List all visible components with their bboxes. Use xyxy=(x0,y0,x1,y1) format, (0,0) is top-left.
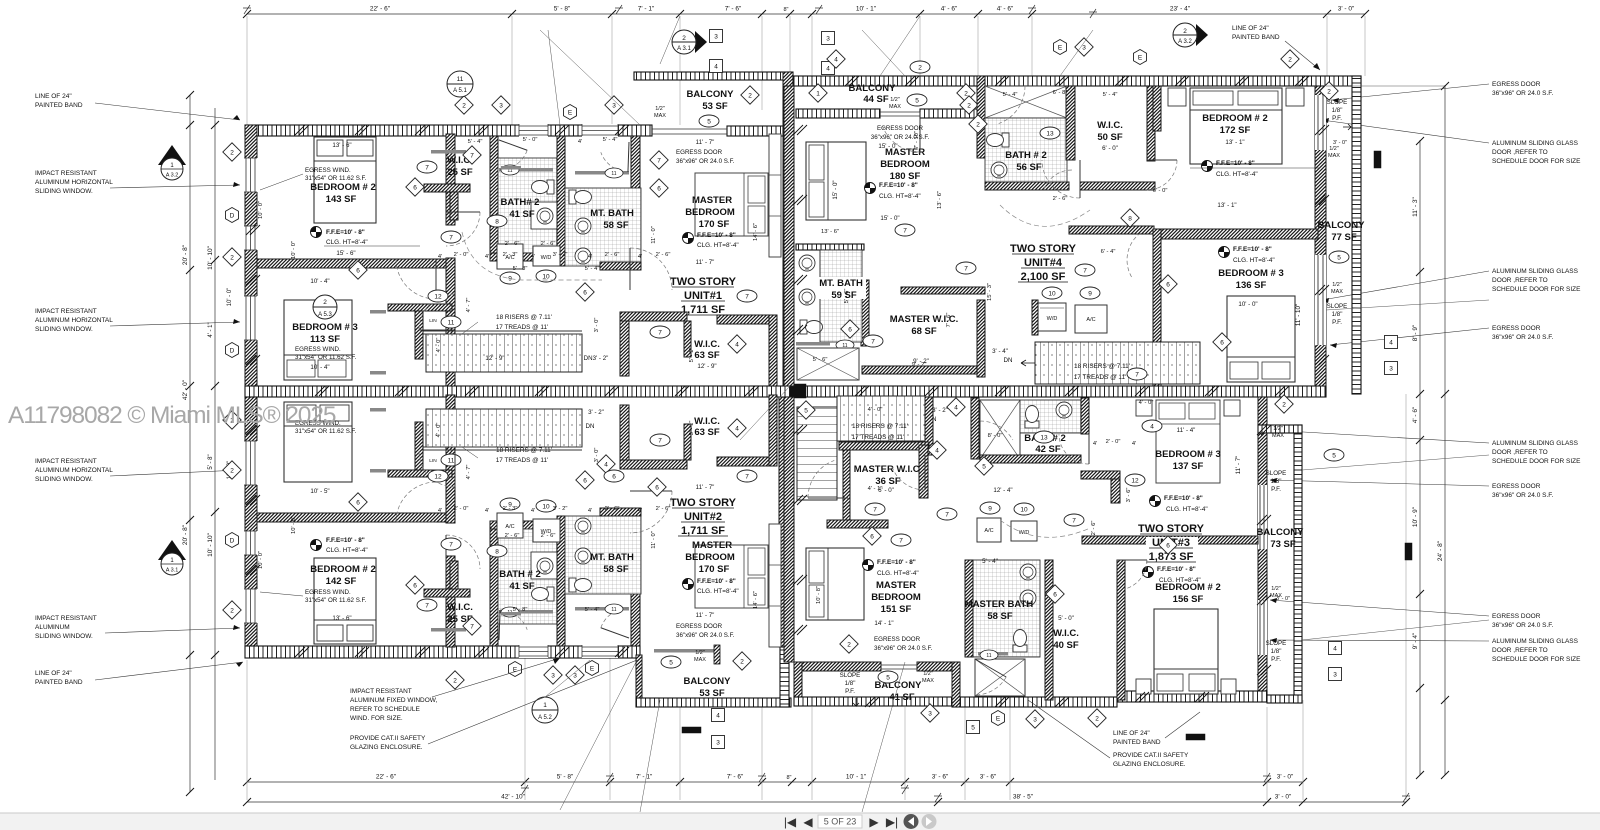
svg-text:23' - 4": 23' - 4" xyxy=(1170,6,1191,13)
svg-text:170 SF: 170 SF xyxy=(699,564,730,575)
svg-text:5: 5 xyxy=(971,724,975,731)
svg-text:5' - 8": 5' - 8" xyxy=(554,6,571,13)
svg-text:BALCONY: BALCONY xyxy=(1257,527,1305,538)
svg-text:2' - 6": 2' - 6" xyxy=(656,252,671,258)
svg-text:12' - 9": 12' - 9" xyxy=(697,363,716,370)
svg-text:MAX: MAX xyxy=(889,104,901,110)
svg-text:3: 3 xyxy=(716,739,720,746)
svg-text:4': 4' xyxy=(531,254,535,260)
svg-text:2' - 6": 2' - 6" xyxy=(605,506,620,512)
svg-text:4' - 0": 4' - 0" xyxy=(436,423,442,438)
svg-text:40 SF: 40 SF xyxy=(1053,640,1079,651)
svg-text:10' - 10": 10' - 10" xyxy=(207,532,214,556)
svg-text:MASTER: MASTER xyxy=(692,195,732,206)
svg-text:EGRESS DOOR: EGRESS DOOR xyxy=(877,125,924,132)
svg-text:6: 6 xyxy=(657,185,661,192)
svg-text:5: 5 xyxy=(982,463,986,470)
svg-text:2: 2 xyxy=(1095,715,1099,722)
svg-text:CLG. HT=8'-4": CLG. HT=8'-4" xyxy=(1166,506,1208,513)
svg-text:10' - 4": 10' - 4" xyxy=(310,278,329,285)
svg-text:4' - 6": 4' - 6" xyxy=(997,6,1014,13)
svg-text:4': 4' xyxy=(588,254,592,260)
svg-text:DOOR ,REFER TO: DOOR ,REFER TO xyxy=(1492,449,1548,456)
svg-text:42 SF: 42 SF xyxy=(1035,444,1061,455)
svg-text:12' - 4": 12' - 4" xyxy=(993,487,1012,494)
svg-text:LINE OF 24": LINE OF 24" xyxy=(35,93,72,100)
svg-text:6' - 0": 6' - 0" xyxy=(1102,145,1118,152)
svg-text:A/C: A/C xyxy=(984,528,993,534)
svg-text:31"x54" OR 11.62 S.F.: 31"x54" OR 11.62 S.F. xyxy=(305,175,367,182)
svg-text:SCHEDULE DOOR FOR SIZE: SCHEDULE DOOR FOR SIZE xyxy=(1492,458,1581,465)
svg-text:2' - 6": 2' - 6" xyxy=(1091,521,1097,536)
svg-text:5' - 4": 5' - 4" xyxy=(468,139,483,145)
svg-text:6: 6 xyxy=(356,267,360,274)
svg-text:22' - 6": 22' - 6" xyxy=(376,774,397,781)
svg-text:DOOR ,REFER TO: DOOR ,REFER TO xyxy=(1492,647,1548,654)
svg-text:10' - 0": 10' - 0" xyxy=(291,241,297,259)
svg-text:7' - 6": 7' - 6" xyxy=(946,313,952,328)
svg-text:F.F.E=10' - 8": F.F.E=10' - 8" xyxy=(326,537,365,544)
svg-text:6: 6 xyxy=(655,484,659,491)
svg-text:11: 11 xyxy=(448,319,455,326)
svg-text:4' - 7": 4' - 7" xyxy=(466,298,472,313)
svg-text:2: 2 xyxy=(918,64,922,71)
svg-text:7: 7 xyxy=(425,164,429,171)
svg-text:2: 2 xyxy=(230,149,234,156)
svg-text:8: 8 xyxy=(495,548,499,555)
svg-text:2: 2 xyxy=(323,299,327,306)
svg-text:1/2": 1/2" xyxy=(1332,282,1342,288)
svg-text:11' - 7": 11' - 7" xyxy=(1235,456,1242,475)
svg-text:1/2": 1/2" xyxy=(1329,146,1339,152)
svg-text:11' - 7": 11' - 7" xyxy=(696,139,715,146)
svg-text:36"x96" OR 24.0 S.F.: 36"x96" OR 24.0 S.F. xyxy=(676,158,735,165)
svg-text:TWO STORY: TWO STORY xyxy=(670,276,737,288)
svg-text:5' - 4": 5' - 4" xyxy=(585,266,600,272)
svg-text:180 SF: 180 SF xyxy=(890,171,921,182)
svg-text:20' - 8": 20' - 8" xyxy=(182,524,189,545)
svg-text:W.I.C.: W.I.C. xyxy=(1097,120,1123,131)
svg-text:4': 4' xyxy=(1132,441,1136,447)
svg-text:SLIDING WINDOW.: SLIDING WINDOW. xyxy=(35,633,93,640)
svg-text:LINE OF 24": LINE OF 24" xyxy=(1113,730,1150,737)
svg-text:5' - 4": 5' - 4" xyxy=(982,558,998,565)
svg-text:6: 6 xyxy=(1053,591,1057,598)
svg-text:MT. BATH: MT. BATH xyxy=(819,278,863,289)
svg-text:1,711 SF: 1,711 SF xyxy=(681,525,725,537)
svg-text:MAX: MAX xyxy=(694,657,706,663)
svg-text:41 SF: 41 SF xyxy=(509,209,535,220)
svg-text:7: 7 xyxy=(425,602,429,609)
svg-text:BEDROOM # 3: BEDROOM # 3 xyxy=(1218,268,1283,279)
svg-text:F.F.E=10' - 8": F.F.E=10' - 8" xyxy=(1233,246,1272,253)
svg-text:CLG. HT=8'-4": CLG. HT=8'-4" xyxy=(697,588,739,595)
svg-text:2' - 6": 2' - 6" xyxy=(505,241,520,247)
svg-text:2' - 6": 2' - 6" xyxy=(505,533,520,539)
svg-text:LIN: LIN xyxy=(429,318,437,324)
svg-text:9' - 2": 9' - 2" xyxy=(912,362,927,368)
svg-text:BALCONY: BALCONY xyxy=(687,89,735,100)
svg-text:2' - 0": 2' - 0" xyxy=(1106,439,1121,445)
svg-text:4: 4 xyxy=(834,56,838,63)
svg-text:4': 4' xyxy=(1093,441,1097,447)
svg-text:7' - 1": 7' - 1" xyxy=(638,6,655,13)
svg-text:EGRESS DOOR: EGRESS DOOR xyxy=(1492,483,1541,490)
svg-text:36"x96" OR 24.0 S.F.: 36"x96" OR 24.0 S.F. xyxy=(1492,492,1554,499)
svg-text:2: 2 xyxy=(1288,56,1292,63)
svg-text:17 TREADS @ 11': 17 TREADS @ 11' xyxy=(1074,374,1127,381)
svg-text:2: 2 xyxy=(682,35,686,42)
svg-text:LINE OF 24": LINE OF 24" xyxy=(1232,25,1269,32)
svg-text:P.F.: P.F. xyxy=(1271,656,1281,663)
svg-text:2: 2 xyxy=(1327,88,1331,95)
svg-text:BALCONY: BALCONY xyxy=(684,676,732,687)
svg-text:SLOPE: SLOPE xyxy=(1266,640,1287,647)
svg-text:ALUMINUM: ALUMINUM xyxy=(35,624,70,631)
svg-text:BALCONY: BALCONY xyxy=(1318,220,1366,231)
svg-text:13' - 1": 13' - 1" xyxy=(1217,202,1236,209)
svg-text:MAX: MAX xyxy=(654,113,666,119)
svg-text:PAINTED BAND: PAINTED BAND xyxy=(1232,34,1280,41)
svg-text:4' - 0": 4' - 0" xyxy=(1139,400,1154,406)
svg-text:3' - 2": 3' - 2" xyxy=(553,506,568,512)
svg-text:A/C: A/C xyxy=(505,524,514,530)
svg-text:2: 2 xyxy=(847,641,851,648)
svg-text:6: 6 xyxy=(413,184,417,191)
svg-text:UNIT#1: UNIT#1 xyxy=(684,290,722,302)
svg-text:7' - 6": 7' - 6" xyxy=(725,6,742,13)
svg-text:7: 7 xyxy=(871,338,875,345)
svg-text:BEDROOM # 2: BEDROOM # 2 xyxy=(310,182,375,193)
svg-text:18 RISERS @ 7.11': 18 RISERS @ 7.11' xyxy=(496,447,552,454)
svg-text:7' - 1": 7' - 1" xyxy=(636,774,653,781)
svg-text:6: 6 xyxy=(1220,339,1224,346)
svg-text:MAX: MAX xyxy=(922,678,934,684)
svg-text:41 SF: 41 SF xyxy=(509,581,535,592)
svg-text:MASTER W.I.C.: MASTER W.I.C. xyxy=(854,464,923,475)
svg-text:9: 9 xyxy=(988,505,992,512)
svg-text:58 SF: 58 SF xyxy=(987,611,1013,622)
svg-text:5' - 6": 5' - 6" xyxy=(813,357,828,363)
svg-text:6: 6 xyxy=(848,326,852,333)
svg-text:44 SF: 44 SF xyxy=(863,94,889,105)
svg-text:53 SF: 53 SF xyxy=(702,101,728,112)
svg-text:4' - 6": 4' - 6" xyxy=(1412,406,1419,423)
svg-text:11' - 7": 11' - 7" xyxy=(696,612,715,619)
svg-text:5' - 0": 5' - 0" xyxy=(523,137,538,143)
svg-text:6' - 8": 6' - 8" xyxy=(1053,90,1068,96)
svg-text:13' - 6": 13' - 6" xyxy=(821,229,839,235)
svg-text:4: 4 xyxy=(935,447,939,454)
svg-text:EGRESS WIND.: EGRESS WIND. xyxy=(295,346,341,353)
svg-text:10' - 0": 10' - 0" xyxy=(291,516,297,534)
svg-text:A 5.3: A 5.3 xyxy=(318,312,332,318)
svg-text:W/D: W/D xyxy=(541,255,552,261)
svg-text:EGRESS WIND.: EGRESS WIND. xyxy=(305,589,351,596)
svg-text:3: 3 xyxy=(1082,44,1086,51)
svg-text:5' - 4": 5' - 4" xyxy=(603,137,618,143)
svg-text:15' - 0": 15' - 0" xyxy=(832,180,839,199)
svg-text:10: 10 xyxy=(1048,290,1056,297)
svg-text:156 SF: 156 SF xyxy=(1173,594,1204,605)
svg-text:7: 7 xyxy=(449,234,453,241)
svg-text:2: 2 xyxy=(740,658,744,665)
svg-text:42' - 10": 42' - 10" xyxy=(501,794,525,801)
svg-text:10' - 9": 10' - 9" xyxy=(1412,506,1419,527)
svg-text:18 RISERS @ 7.11': 18 RISERS @ 7.11' xyxy=(496,314,552,321)
svg-text:SLIDING WINDOW.: SLIDING WINDOW. xyxy=(35,476,93,483)
svg-text:A 3.1: A 3.1 xyxy=(166,568,179,574)
svg-text:BALCONY: BALCONY xyxy=(849,83,897,94)
svg-text:IMPACT RESISTANT: IMPACT RESISTANT xyxy=(35,170,97,177)
svg-text:P.F.: P.F. xyxy=(1271,486,1281,493)
svg-text:E: E xyxy=(568,109,573,116)
svg-text:1/2": 1/2" xyxy=(923,671,933,677)
svg-text:6: 6 xyxy=(583,477,587,484)
svg-text:11' - 3": 11' - 3" xyxy=(1412,196,1419,216)
svg-text:F.F.E=10' - 8": F.F.E=10' - 8" xyxy=(1216,160,1255,167)
svg-text:1/8": 1/8" xyxy=(1271,478,1282,485)
svg-text:3' - 0": 3' - 0" xyxy=(1338,6,1355,13)
svg-text:172 SF: 172 SF xyxy=(1220,125,1251,136)
svg-text:D: D xyxy=(230,347,235,354)
svg-text:BATH # 2: BATH # 2 xyxy=(499,569,541,580)
svg-text:58 SF: 58 SF xyxy=(603,564,629,575)
svg-text:A 5.2: A 5.2 xyxy=(538,715,552,721)
svg-text:1,711 SF: 1,711 SF xyxy=(681,304,725,316)
svg-text:DN: DN xyxy=(1004,357,1013,364)
svg-text:7: 7 xyxy=(899,537,903,544)
svg-text:4' - 1": 4' - 1" xyxy=(868,486,883,492)
svg-text:4: 4 xyxy=(1333,645,1337,652)
svg-text:36"x96" OR 24.0 S.F.: 36"x96" OR 24.0 S.F. xyxy=(871,134,930,141)
svg-text:5: 5 xyxy=(804,407,808,414)
svg-text:5' - 1": 5' - 1" xyxy=(689,348,695,363)
svg-text:5' - 8": 5' - 8" xyxy=(208,454,214,469)
svg-text:F.F.E=10' - 8": F.F.E=10' - 8" xyxy=(879,182,918,189)
svg-text:E: E xyxy=(996,715,1001,722)
svg-text:2' - 3": 2' - 3" xyxy=(503,252,518,258)
svg-text:2: 2 xyxy=(964,90,968,97)
svg-text:EGRESS DOOR: EGRESS DOOR xyxy=(676,149,723,156)
svg-text:11' - 7": 11' - 7" xyxy=(696,484,715,491)
svg-text:F.F.E=10' - 8": F.F.E=10' - 8" xyxy=(697,232,736,239)
svg-text:2' - 0": 2' - 0" xyxy=(454,252,469,258)
svg-text:BEDROOM # 2: BEDROOM # 2 xyxy=(1155,582,1220,593)
svg-text:2' - 0": 2' - 0" xyxy=(454,506,469,512)
svg-text:14' - 1": 14' - 1" xyxy=(874,620,893,627)
svg-text:13: 13 xyxy=(1040,434,1048,441)
svg-text:EGRESS DOOR: EGRESS DOOR xyxy=(874,636,921,643)
svg-text:4: 4 xyxy=(604,461,608,468)
svg-text:7: 7 xyxy=(449,541,453,548)
svg-text:5: 5 xyxy=(1332,452,1336,459)
svg-text:7: 7 xyxy=(745,293,749,300)
svg-text:4': 4' xyxy=(485,508,489,514)
svg-text:6' - 0": 6' - 0" xyxy=(1153,188,1168,194)
svg-text:D: D xyxy=(230,212,235,219)
svg-text:4: 4 xyxy=(826,65,830,72)
svg-text:2' - 6": 2' - 6" xyxy=(605,252,620,258)
svg-text:7: 7 xyxy=(745,473,749,480)
svg-text:1/2": 1/2" xyxy=(1273,426,1283,432)
svg-text:8' - 9": 8' - 9" xyxy=(1412,324,1419,341)
svg-text:P.F.: P.F. xyxy=(1332,115,1342,122)
svg-text:4: 4 xyxy=(735,425,739,432)
svg-text:7: 7 xyxy=(945,511,949,518)
svg-text:11: 11 xyxy=(611,607,616,613)
svg-text:3' - 6": 3' - 6" xyxy=(980,774,997,781)
svg-text:CLG. HT=8'-4": CLG. HT=8'-4" xyxy=(326,547,368,554)
svg-text:36"x96" OR 24.0 S.F.: 36"x96" OR 24.0 S.F. xyxy=(1492,90,1554,97)
svg-text:10' - 1": 10' - 1" xyxy=(846,774,867,781)
svg-text:GLAZING ENCLOSURE.: GLAZING ENCLOSURE. xyxy=(350,744,423,751)
svg-text:5: 5 xyxy=(915,97,919,104)
svg-text:3' - 0": 3' - 0" xyxy=(1275,794,1292,801)
svg-text:IMPACT RESISTANT: IMPACT RESISTANT xyxy=(35,458,97,465)
svg-text:4: 4 xyxy=(954,404,958,411)
svg-text:12: 12 xyxy=(1131,477,1139,484)
svg-text:A 3.2: A 3.2 xyxy=(166,173,179,179)
svg-text:6: 6 xyxy=(583,289,587,296)
svg-text:18 RISERS @ 7.11': 18 RISERS @ 7.11' xyxy=(852,423,908,430)
svg-text:6: 6 xyxy=(356,499,360,506)
svg-text:TWO STORY: TWO STORY xyxy=(1138,523,1205,535)
svg-text:3' - 0": 3' - 0" xyxy=(594,448,600,463)
svg-text:PROVIDE CAT.II SAFETY: PROVIDE CAT.II SAFETY xyxy=(1113,752,1189,759)
svg-text:1/8": 1/8" xyxy=(1271,648,1282,655)
svg-text:25 SF: 25 SF xyxy=(447,167,473,178)
svg-text:7: 7 xyxy=(658,437,662,444)
svg-text:4': 4' xyxy=(578,139,582,145)
svg-text:7: 7 xyxy=(873,506,877,513)
svg-text:5' - 0": 5' - 0" xyxy=(1058,615,1074,622)
svg-text:3: 3 xyxy=(1389,365,1393,372)
svg-text:7' - 6": 7' - 6" xyxy=(727,774,744,781)
svg-text:4': 4' xyxy=(638,508,642,514)
svg-text:36"x96" OR 24.0 S.F.: 36"x96" OR 24.0 S.F. xyxy=(874,645,933,652)
svg-text:MASTER: MASTER xyxy=(876,580,916,591)
svg-text:13' - 6": 13' - 6" xyxy=(937,191,943,209)
svg-text:▶|: ▶| xyxy=(886,815,898,829)
svg-text:6: 6 xyxy=(1166,542,1170,549)
svg-text:2: 2 xyxy=(230,467,234,474)
svg-text:14' - 6": 14' - 6" xyxy=(753,223,759,241)
svg-text:BEDROOM # 2: BEDROOM # 2 xyxy=(310,564,375,575)
svg-text:10' - 1": 10' - 1" xyxy=(856,6,877,13)
svg-text:11' - 0": 11' - 0" xyxy=(651,531,657,549)
svg-text:7: 7 xyxy=(1083,267,1087,274)
svg-text:3' - 0": 3' - 0" xyxy=(1333,140,1347,146)
svg-text:7: 7 xyxy=(1072,517,1076,524)
svg-text:12' - 9": 12' - 9" xyxy=(485,355,504,362)
svg-text:DN: DN xyxy=(586,423,595,430)
svg-text:13: 13 xyxy=(1046,130,1054,137)
svg-text:ALUMINUM SLIDING GLASS: ALUMINUM SLIDING GLASS xyxy=(1492,140,1579,147)
svg-text:7: 7 xyxy=(657,157,661,164)
svg-text:F.F.E=10' - 8": F.F.E=10' - 8" xyxy=(326,229,365,236)
svg-text:EGRESS DOOR: EGRESS DOOR xyxy=(676,623,723,630)
svg-text:8": 8" xyxy=(786,775,791,781)
svg-text:BEDROOM: BEDROOM xyxy=(880,159,930,170)
svg-text:1/8": 1/8" xyxy=(1332,107,1343,114)
svg-text:EGRESS DOOR: EGRESS DOOR xyxy=(1492,613,1541,620)
svg-text:P.F.: P.F. xyxy=(845,688,855,695)
svg-text:3' - 2": 3' - 2" xyxy=(553,252,568,258)
svg-text:5 OF 23: 5 OF 23 xyxy=(824,817,857,827)
svg-text:P.F.: P.F. xyxy=(1332,319,1342,326)
svg-text:ALUMINUM FIXED WINDOW,: ALUMINUM FIXED WINDOW, xyxy=(350,697,438,704)
svg-text:2: 2 xyxy=(967,102,971,109)
svg-text:63 SF: 63 SF xyxy=(694,427,720,438)
svg-text:136 SF: 136 SF xyxy=(1236,280,1267,291)
svg-text:24' - 8": 24' - 8" xyxy=(1437,540,1444,561)
svg-text:MT. BATH: MT. BATH xyxy=(590,552,634,563)
svg-text:4' - 0": 4' - 0" xyxy=(868,407,883,413)
svg-text:15' - 6": 15' - 6" xyxy=(336,250,355,257)
svg-text:5' - 8": 5' - 8" xyxy=(557,774,574,781)
svg-text:10' - 0": 10' - 0" xyxy=(1238,301,1257,308)
svg-text:WIND. FOR SIZE.: WIND. FOR SIZE. xyxy=(350,715,403,722)
svg-text:4': 4' xyxy=(485,254,489,260)
svg-text:5: 5 xyxy=(707,118,711,125)
svg-text:5' - 8": 5' - 8" xyxy=(513,266,528,272)
svg-text:5' - 6": 5' - 6" xyxy=(844,289,850,304)
svg-text:UNIT#2: UNIT#2 xyxy=(684,511,722,523)
svg-text:6: 6 xyxy=(870,533,874,540)
svg-text:73 SF: 73 SF xyxy=(1270,539,1296,550)
svg-text:1/8": 1/8" xyxy=(845,680,856,687)
svg-text:3' - 0": 3' - 0" xyxy=(594,318,600,333)
svg-text:14' - 6": 14' - 6" xyxy=(753,591,759,609)
svg-text:3' - 2": 3' - 2" xyxy=(588,409,604,416)
svg-text:MASTER: MASTER xyxy=(692,540,732,551)
svg-text:PAINTED BAND: PAINTED BAND xyxy=(35,102,83,109)
svg-text:A 3.1: A 3.1 xyxy=(677,46,691,52)
svg-text:4': 4' xyxy=(638,254,642,260)
svg-text:TWO STORY: TWO STORY xyxy=(1010,243,1077,255)
svg-text:77 SF: 77 SF xyxy=(1331,232,1357,243)
svg-text:31"x54" OR 11.62 S.F.: 31"x54" OR 11.62 S.F. xyxy=(295,354,357,361)
svg-text:E: E xyxy=(1058,44,1063,51)
svg-text:5: 5 xyxy=(669,659,673,666)
svg-text:137 SF: 137 SF xyxy=(1173,461,1204,472)
svg-text:18 RISERS @ 7.11': 18 RISERS @ 7.11' xyxy=(1074,363,1130,370)
svg-text:MASTER BATH: MASTER BATH xyxy=(965,599,1034,610)
svg-text:UNIT#4: UNIT#4 xyxy=(1024,257,1063,269)
svg-text:15' - 3": 15' - 3" xyxy=(987,283,993,301)
svg-text:53 SF: 53 SF xyxy=(699,688,725,699)
svg-text:1/2": 1/2" xyxy=(890,97,900,103)
svg-text:2: 2 xyxy=(453,677,457,684)
svg-text:4': 4' xyxy=(588,508,592,514)
svg-text:3' - 6": 3' - 6" xyxy=(932,774,949,781)
svg-text:10' - 0": 10' - 0" xyxy=(258,201,264,219)
svg-text:ALUMINUM HORIZONTAL: ALUMINUM HORIZONTAL xyxy=(35,467,113,474)
svg-text:EGRESS WIND.: EGRESS WIND. xyxy=(305,167,351,174)
svg-text:10' - 8": 10' - 8" xyxy=(816,586,822,604)
svg-text:31"x54" OR 11.62 S.F.: 31"x54" OR 11.62 S.F. xyxy=(295,428,357,435)
svg-text:IMPACT RESISTANT: IMPACT RESISTANT xyxy=(35,615,97,622)
svg-text:▶: ▶ xyxy=(869,815,879,829)
svg-text:BATH# 2: BATH# 2 xyxy=(501,197,540,208)
svg-text:F.F.E=10' - 8": F.F.E=10' - 8" xyxy=(1164,495,1203,502)
svg-text:13' - 6": 13' - 6" xyxy=(332,142,351,149)
svg-text:8: 8 xyxy=(495,218,499,225)
svg-text:6: 6 xyxy=(1166,281,1170,288)
svg-text:W.I.C.: W.I.C. xyxy=(694,339,720,350)
svg-text:CLG. HT=8'-4": CLG. HT=8'-4" xyxy=(1233,257,1275,264)
